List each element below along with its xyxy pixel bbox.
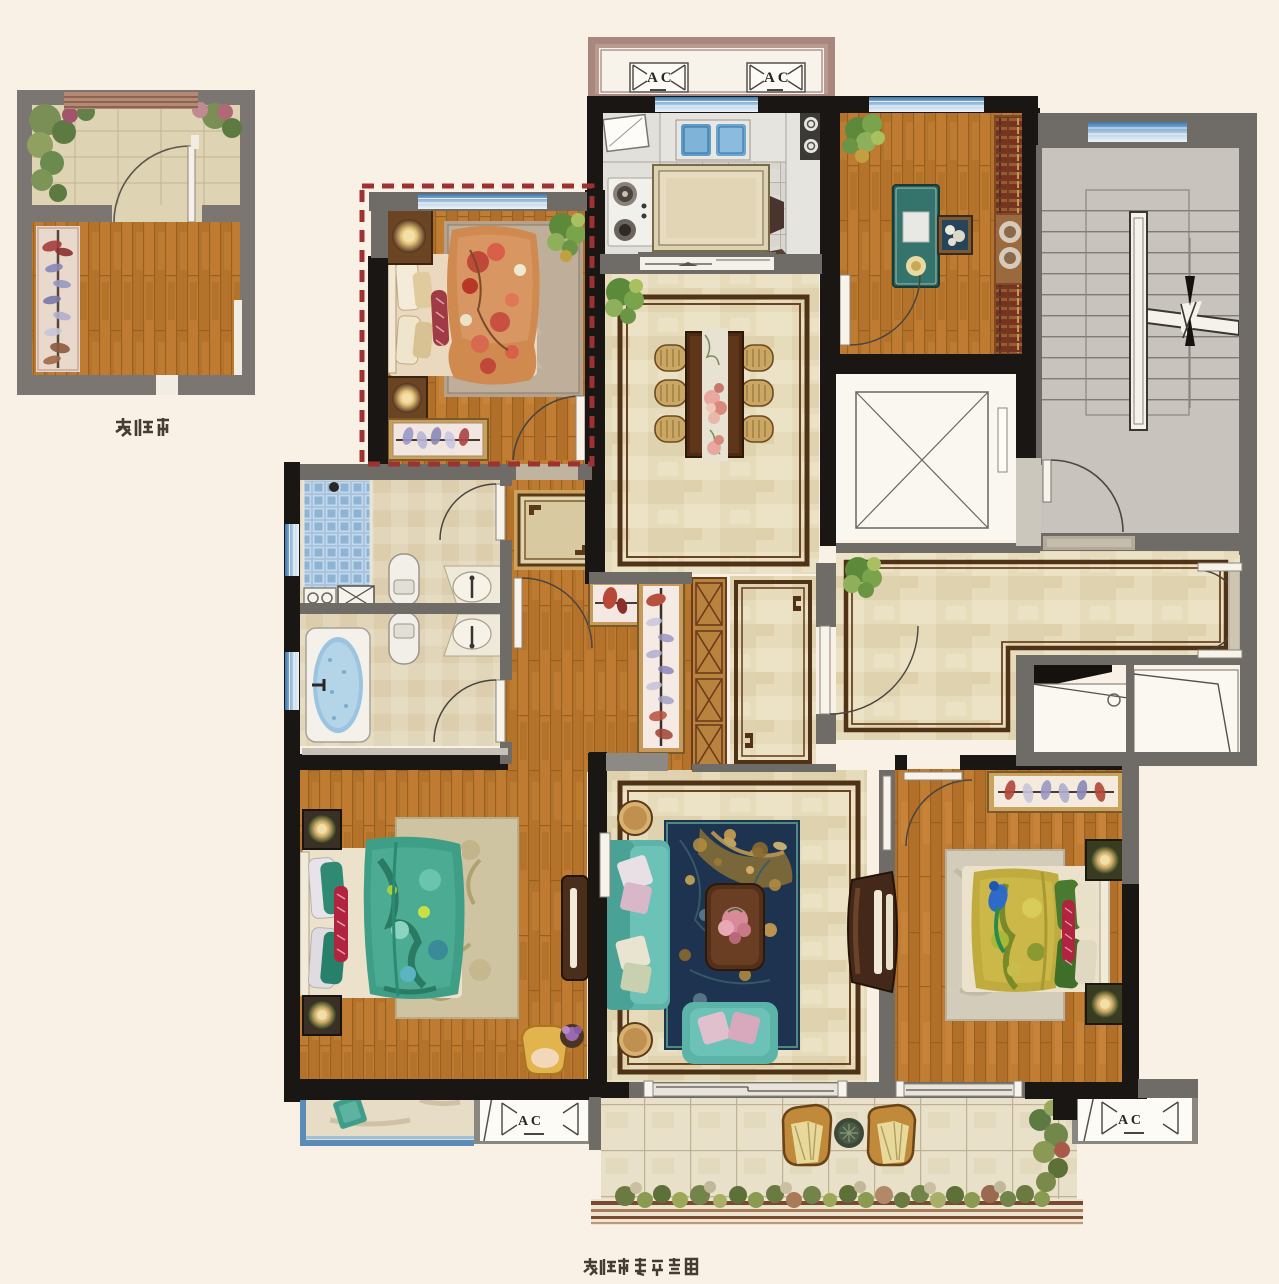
svg-text:A C: A C [764, 70, 789, 86]
svg-text:A C: A C [518, 1114, 541, 1129]
svg-text:A C: A C [647, 70, 672, 86]
svg-text:A C: A C [1118, 1113, 1141, 1128]
